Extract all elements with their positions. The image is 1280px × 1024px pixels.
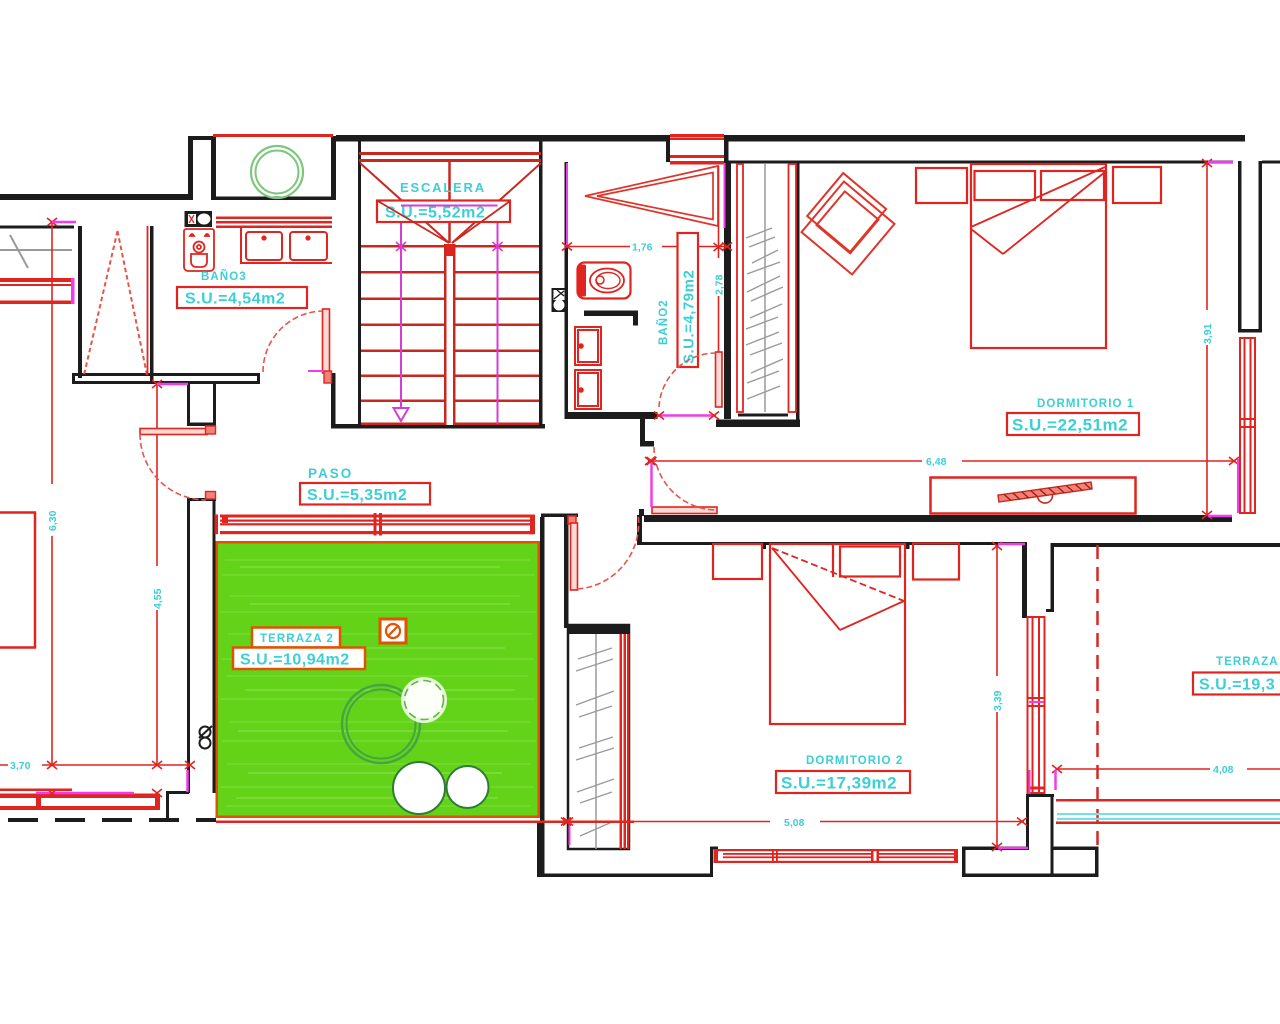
svg-text:DORMITORIO 1: DORMITORIO 1	[1037, 398, 1134, 410]
svg-text:BAÑO3: BAÑO3	[201, 270, 247, 283]
svg-text:S.U.=19,3: S.U.=19,3	[1199, 677, 1275, 694]
svg-text:TERRAZA 2: TERRAZA 2	[260, 633, 334, 645]
svg-text:S.U.=5,52m2: S.U.=5,52m2	[385, 205, 485, 222]
svg-text:DORMITORIO 2: DORMITORIO 2	[806, 755, 903, 767]
svg-text:3,70: 3,70	[10, 760, 31, 772]
svg-text:4,55: 4,55	[152, 588, 164, 609]
svg-text:S.U.=17,39m2: S.U.=17,39m2	[781, 774, 897, 793]
svg-text:6,30: 6,30	[47, 510, 59, 531]
svg-text:S.U.=4,79m2: S.U.=4,79m2	[681, 270, 698, 364]
svg-text:3,39: 3,39	[992, 690, 1004, 711]
svg-text:S.U.=4,54m2: S.U.=4,54m2	[185, 291, 285, 308]
svg-text:ESCALERA: ESCALERA	[400, 180, 486, 195]
svg-text:S.U.=10,94m2: S.U.=10,94m2	[240, 652, 350, 669]
svg-text:S.U.=22,51m2: S.U.=22,51m2	[1012, 416, 1128, 435]
svg-text:PASO: PASO	[308, 466, 353, 481]
svg-text:TERRAZA: TERRAZA	[1216, 656, 1279, 668]
svg-text:5,08: 5,08	[784, 817, 805, 829]
svg-text:2,78: 2,78	[714, 274, 726, 295]
svg-text:4,08: 4,08	[1213, 764, 1234, 776]
svg-text:1,76: 1,76	[632, 242, 653, 254]
svg-text:6,48: 6,48	[926, 456, 947, 468]
svg-text:S.U.=5,35m2: S.U.=5,35m2	[307, 487, 407, 504]
svg-text:BAÑO2: BAÑO2	[657, 299, 670, 345]
svg-text:3,91: 3,91	[1202, 323, 1214, 344]
